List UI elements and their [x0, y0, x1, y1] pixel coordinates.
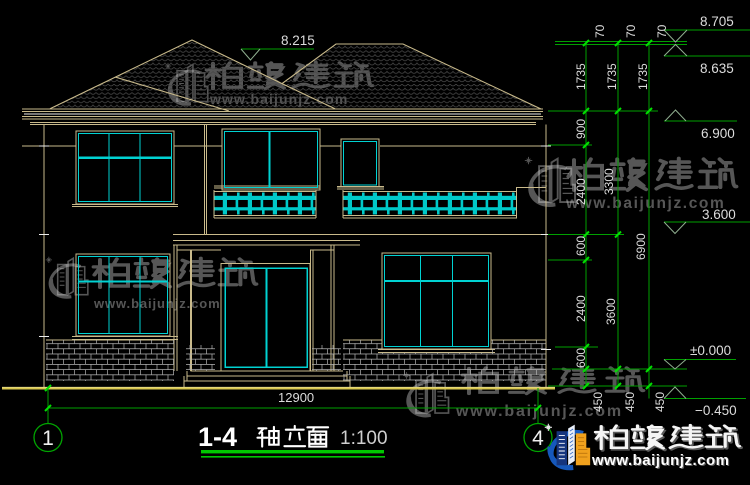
svg-text:70: 70 [593, 24, 607, 38]
svg-text:450: 450 [591, 392, 605, 412]
svg-text:450: 450 [653, 392, 667, 412]
svg-text:1735: 1735 [574, 63, 588, 90]
svg-text:1735: 1735 [636, 63, 650, 90]
svg-text:3.600: 3.600 [702, 207, 736, 222]
svg-text:1-4: 1-4 [198, 422, 237, 452]
svg-text:1735: 1735 [605, 63, 619, 90]
svg-text:4: 4 [532, 427, 544, 450]
svg-text:8.215: 8.215 [281, 33, 315, 48]
svg-text:8.705: 8.705 [700, 14, 734, 29]
svg-text:70: 70 [655, 24, 669, 38]
svg-text:6.900: 6.900 [701, 126, 735, 141]
svg-text:6900: 6900 [634, 233, 648, 260]
svg-text:www.baijunjz.com: www.baijunjz.com [93, 296, 221, 311]
svg-text:600: 600 [574, 236, 588, 256]
svg-text:8.635: 8.635 [700, 61, 734, 76]
svg-text:12900: 12900 [278, 390, 314, 405]
svg-text:3600: 3600 [604, 298, 618, 325]
svg-text:450: 450 [623, 392, 637, 412]
svg-text:1:100: 1:100 [340, 428, 388, 449]
svg-text:www.baijunjz.com: www.baijunjz.com [591, 452, 729, 469]
svg-text:2400: 2400 [574, 178, 588, 205]
svg-text:−0.450: −0.450 [695, 403, 737, 418]
svg-text:2400: 2400 [574, 295, 588, 322]
svg-text:70: 70 [624, 24, 638, 38]
svg-text:600: 600 [574, 348, 588, 368]
svg-text:3300: 3300 [602, 168, 616, 195]
svg-text:1: 1 [42, 427, 54, 450]
svg-text:900: 900 [574, 119, 588, 139]
svg-text:±0.000: ±0.000 [690, 343, 731, 358]
